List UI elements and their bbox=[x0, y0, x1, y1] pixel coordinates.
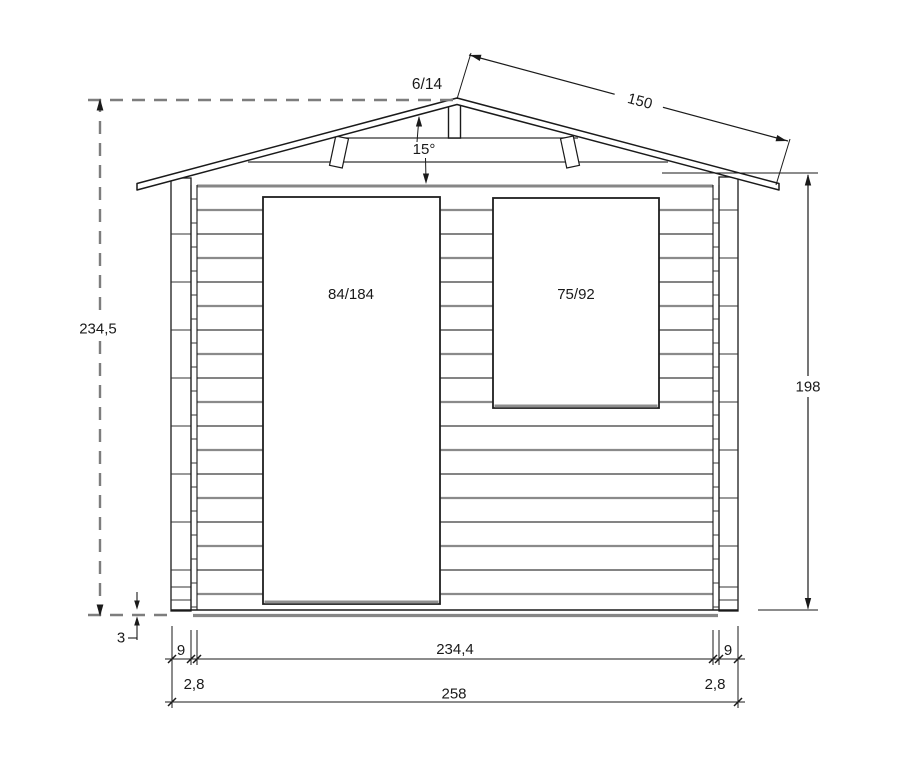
ridge-beam-size-label: 6/14 bbox=[412, 76, 443, 93]
overall-width-label: 258 bbox=[441, 686, 466, 703]
arrow-downright-icon bbox=[776, 135, 788, 144]
wall-height-label: 198 bbox=[795, 379, 820, 396]
arrow-down-icon bbox=[805, 598, 811, 610]
door: 84/184 bbox=[263, 197, 440, 604]
arrow-down-icon bbox=[134, 601, 140, 610]
arrow-up-icon bbox=[134, 616, 140, 625]
overall-height-label: 234,5 bbox=[79, 321, 117, 338]
gable-strut-right bbox=[561, 136, 580, 168]
floor-thickness-label: 3 bbox=[117, 630, 125, 647]
gable bbox=[248, 104, 668, 168]
wall-plank-right-label: 2,8 bbox=[705, 676, 726, 693]
wall-inner-width-label: 234,4 bbox=[436, 641, 474, 658]
wall-plank-left-label: 2,8 bbox=[184, 676, 205, 693]
corner-joint-left-label: 9 bbox=[177, 642, 185, 659]
window-size-label: 75/92 bbox=[557, 286, 595, 303]
arrow-up-icon bbox=[805, 174, 811, 186]
door-size-label: 84/184 bbox=[328, 286, 374, 303]
roof-pitch-label: 15° bbox=[413, 141, 436, 158]
corner-joint-strip-left bbox=[191, 185, 197, 610]
shed-elevation-drawing: 84/184 75/92 234,5 198 bbox=[0, 0, 920, 764]
arrow-up-icon bbox=[416, 116, 422, 127]
gable-strut-left bbox=[330, 136, 349, 168]
dim-roof-pitch: 15° bbox=[413, 116, 436, 184]
ridge-post bbox=[449, 104, 461, 138]
arrow-down-icon bbox=[423, 174, 429, 185]
dim-wall-height: 198 bbox=[662, 173, 829, 610]
corner-joint-right-label: 9 bbox=[724, 642, 732, 659]
corner-joint-strip-right bbox=[713, 185, 719, 610]
corner-post-left bbox=[171, 178, 191, 611]
elevation-canvas: 84/184 75/92 234,5 198 bbox=[0, 0, 920, 764]
dim-floor-thickness: 3 bbox=[117, 592, 140, 647]
window: 75/92 bbox=[493, 198, 659, 408]
